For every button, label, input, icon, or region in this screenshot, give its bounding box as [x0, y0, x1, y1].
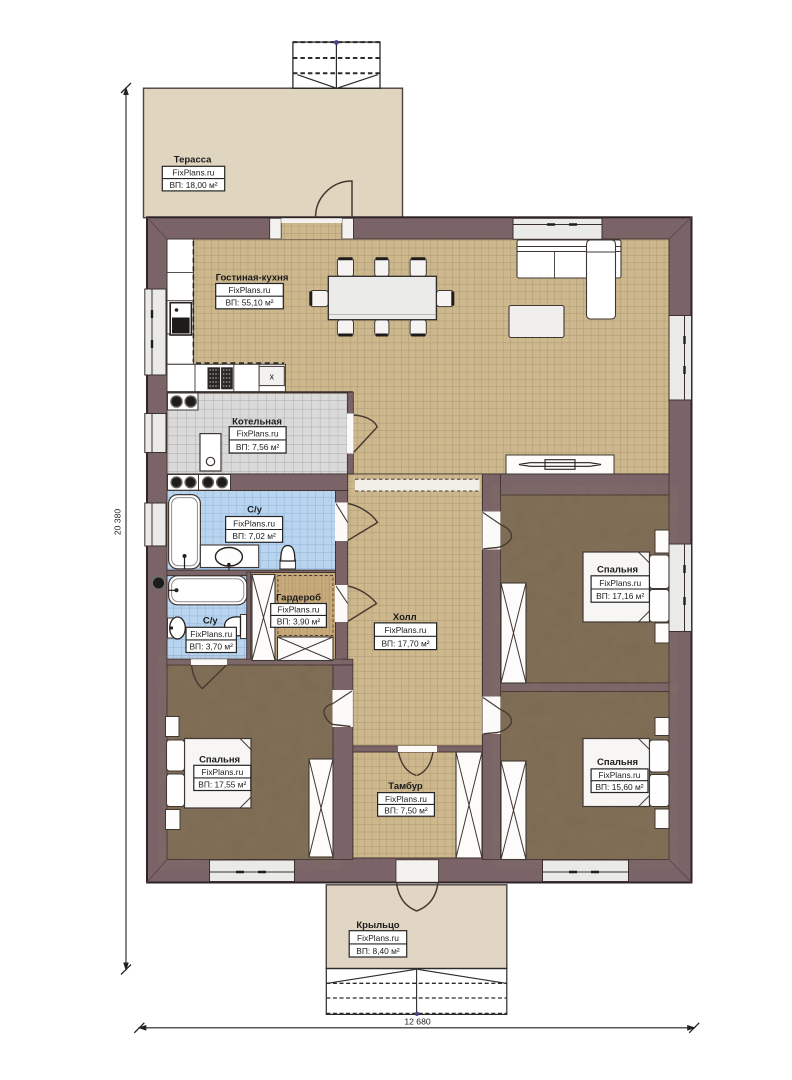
svg-text:Гостиная-кухня: Гостиная-кухня	[216, 273, 289, 284]
svg-text:FixPlans.ru: FixPlans.ru	[385, 794, 427, 804]
svg-text:Холл: Холл	[393, 612, 417, 623]
svg-text:FixPlans.ru: FixPlans.ru	[599, 770, 641, 780]
svg-text:ВП: 7,56 м²: ВП: 7,56 м²	[236, 442, 280, 452]
svg-text:ВП: 17,16 м²: ВП: 17,16 м²	[596, 591, 644, 601]
svg-text:FixPlans.ru: FixPlans.ru	[237, 429, 279, 439]
svg-text:С/у: С/у	[203, 616, 219, 627]
svg-text:FixPlans.ru: FixPlans.ru	[173, 168, 215, 178]
svg-text:20 380: 20 380	[113, 509, 123, 536]
svg-text:Терасса: Терасса	[174, 154, 212, 165]
svg-text:ВП: 7,50 м²: ВП: 7,50 м²	[384, 806, 428, 816]
svg-text:ВП: 55,10 м²: ВП: 55,10 м²	[225, 298, 273, 308]
svg-text:Котельная: Котельная	[232, 416, 282, 427]
svg-text:ВП: 15,60 м²: ВП: 15,60 м²	[595, 782, 643, 792]
svg-text:Гардероб: Гардероб	[276, 593, 321, 604]
svg-text:FixPlans.ru: FixPlans.ru	[599, 578, 641, 588]
svg-text:ВП: 7,02 м²: ВП: 7,02 м²	[232, 531, 276, 541]
svg-text:FixPlans.ru: FixPlans.ru	[385, 625, 427, 635]
svg-text:Спальня: Спальня	[597, 757, 638, 768]
svg-text:FixPlans.ru: FixPlans.ru	[278, 605, 320, 615]
svg-text:FixPlans.ru: FixPlans.ru	[357, 933, 399, 943]
svg-text:Крыльцо: Крыльцо	[356, 920, 399, 931]
svg-text:FixPlans.ru: FixPlans.ru	[229, 285, 271, 295]
svg-text:ВП: 8,40 м²: ВП: 8,40 м²	[356, 946, 400, 956]
svg-text:ВП: 17,55 м²: ВП: 17,55 м²	[198, 780, 246, 790]
svg-text:FixPlans.ru: FixPlans.ru	[233, 518, 275, 528]
svg-text:FixPlans.ru: FixPlans.ru	[190, 629, 232, 639]
svg-text:Спальня: Спальня	[199, 754, 240, 765]
svg-text:ВП: 3,70 м²: ВП: 3,70 м²	[189, 642, 233, 652]
svg-text:FixPlans.ru: FixPlans.ru	[201, 767, 243, 777]
svg-text:12 680: 12 680	[404, 1017, 431, 1027]
svg-text:Тамбур: Тамбур	[388, 781, 423, 792]
svg-text:ВП: 18,00 м²: ВП: 18,00 м²	[169, 180, 217, 190]
svg-text:С/у: С/у	[247, 504, 263, 515]
svg-text:Спальня: Спальня	[597, 565, 638, 576]
svg-text:ВП: 17,70 м²: ВП: 17,70 м²	[381, 638, 429, 648]
svg-text:x: x	[269, 372, 274, 382]
svg-text:ВП: 3,90 м²: ВП: 3,90 м²	[277, 617, 321, 627]
